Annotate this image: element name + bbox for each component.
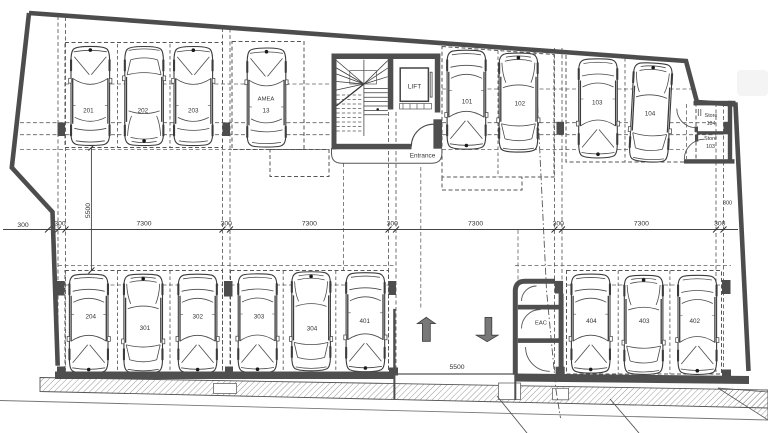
- svg-text:104: 104: [707, 121, 716, 127]
- svg-text:300: 300: [723, 201, 732, 207]
- svg-text:7300: 7300: [634, 221, 649, 228]
- svg-text:303: 303: [254, 314, 265, 321]
- svg-text:EAC: EAC: [535, 321, 547, 327]
- svg-text:102: 102: [515, 100, 526, 107]
- svg-text:401: 401: [359, 318, 370, 325]
- svg-text:Entrance: Entrance: [410, 152, 436, 159]
- svg-text:103: 103: [592, 100, 603, 107]
- svg-text:302: 302: [193, 314, 204, 321]
- svg-text:300: 300: [387, 221, 399, 228]
- svg-text:103: 103: [706, 144, 715, 150]
- svg-text:203: 203: [188, 108, 199, 115]
- svg-text:304: 304: [307, 326, 318, 333]
- svg-text:300: 300: [54, 221, 66, 228]
- svg-text:402: 402: [689, 318, 700, 325]
- svg-text:LIFT: LIFT: [408, 84, 421, 91]
- svg-text:300: 300: [714, 221, 726, 228]
- svg-text:300: 300: [553, 221, 565, 228]
- svg-text:13: 13: [262, 108, 270, 115]
- svg-text:Store: Store: [705, 113, 718, 119]
- svg-text:7300: 7300: [468, 221, 483, 228]
- svg-text:301: 301: [140, 325, 151, 332]
- svg-text:300: 300: [17, 222, 29, 229]
- svg-text:101: 101: [462, 98, 473, 105]
- svg-text:202: 202: [138, 108, 149, 115]
- svg-text:104: 104: [645, 111, 656, 118]
- svg-text:7300: 7300: [302, 221, 317, 228]
- svg-text:201: 201: [83, 107, 94, 114]
- svg-text:Store: Store: [704, 136, 717, 142]
- svg-text:7300: 7300: [136, 221, 151, 228]
- svg-text:5500: 5500: [449, 364, 464, 371]
- svg-text:404: 404: [586, 318, 597, 325]
- svg-text:204: 204: [86, 314, 97, 321]
- svg-text:403: 403: [639, 318, 650, 325]
- svg-text:AMEA: AMEA: [258, 96, 275, 102]
- svg-text:5500: 5500: [85, 203, 92, 218]
- svg-text:300: 300: [221, 221, 233, 228]
